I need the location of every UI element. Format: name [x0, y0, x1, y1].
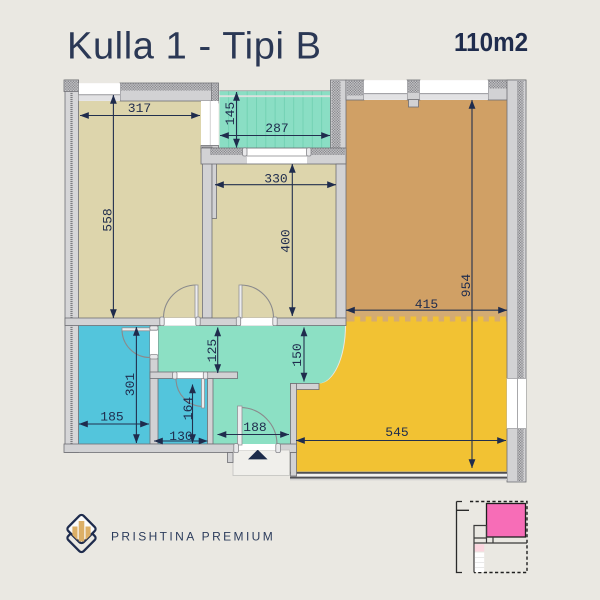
svg-text:558: 558	[101, 208, 116, 231]
svg-text:125: 125	[205, 339, 220, 362]
svg-text:287: 287	[265, 121, 288, 136]
svg-text:PRISHTINA PREMIUM: PRISHTINA PREMIUM	[111, 530, 275, 544]
svg-text:188: 188	[243, 420, 266, 435]
svg-text:317: 317	[128, 101, 151, 116]
svg-text:110m2: 110m2	[454, 28, 528, 57]
svg-text:330: 330	[264, 172, 287, 187]
svg-text:301: 301	[123, 373, 138, 397]
svg-text:400: 400	[279, 229, 294, 252]
svg-text:130: 130	[169, 429, 192, 444]
svg-text:185: 185	[100, 410, 123, 425]
svg-text:954: 954	[459, 274, 474, 298]
svg-text:Kulla 1 - Tipi B: Kulla 1 - Tipi B	[67, 26, 322, 68]
svg-text:150: 150	[290, 343, 305, 366]
svg-text:145: 145	[223, 102, 238, 125]
svg-text:415: 415	[415, 297, 438, 312]
svg-text:545: 545	[385, 425, 408, 440]
svg-text:164: 164	[181, 397, 196, 421]
